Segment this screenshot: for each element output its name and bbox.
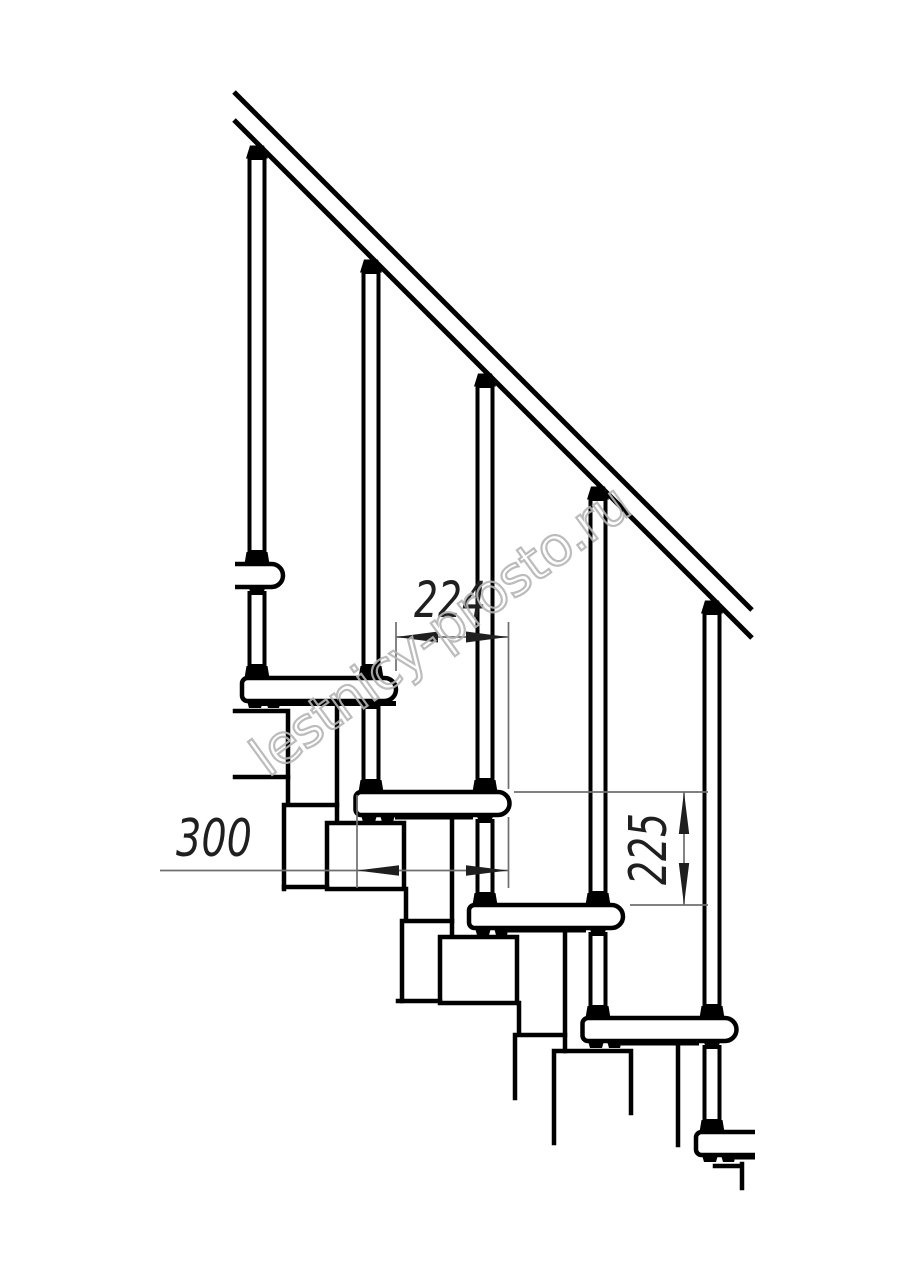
watermark-text: lestnicy-prosto.ru [239, 472, 642, 789]
module-mount-tab [494, 928, 509, 935]
tread [356, 792, 510, 815]
baluster-shaft [705, 613, 720, 1006]
spine-module-box-cut [554, 1051, 631, 1143]
spine-module-step [406, 889, 452, 921]
baluster [245, 146, 270, 679]
spine-module-box [440, 937, 517, 1003]
baluster-collar [700, 1006, 725, 1018]
baluster-collar [359, 780, 384, 792]
drawing-canvas: 224 300 225 lestnicy-prosto.ru [0, 0, 914, 1280]
baluster-collar [586, 893, 611, 905]
module-contact-plate [395, 815, 473, 820]
dimension-depth-label: 300 [176, 809, 252, 869]
tread [469, 905, 623, 928]
module-mount-tab [266, 701, 281, 708]
spine-module-box [327, 823, 404, 889]
module-mount-tab [247, 701, 263, 708]
baluster-shaft [591, 934, 606, 1007]
module-mount-tab [588, 1041, 604, 1048]
module-mount-tab [607, 1041, 622, 1048]
module-contact-plate [621, 1041, 699, 1046]
spine-module-step [519, 1003, 565, 1035]
module-mount-tab [361, 815, 377, 822]
tread [583, 1018, 737, 1041]
spine-module-step [288, 777, 337, 805]
module-mount-tab [721, 1155, 736, 1162]
staircase-technical-drawing: 224 300 225 lestnicy-prosto.ru [0, 0, 914, 1280]
module-contact-plate [508, 928, 586, 933]
baluster-shaft [250, 593, 265, 666]
dimension-rise-label: 225 [619, 813, 679, 885]
tread-cut-top [235, 564, 283, 587]
arrowhead-up-icon [679, 792, 689, 834]
baluster-collar [245, 552, 270, 564]
baluster-collar [245, 666, 270, 678]
baluster-collar [700, 1120, 725, 1132]
baluster [700, 601, 725, 1133]
baluster-shaft [478, 821, 493, 894]
module-mount-tab [380, 815, 395, 822]
dimension-rise: 225 [514, 792, 708, 905]
baluster-collar [586, 1006, 611, 1018]
tread-cut-bottom [696, 1132, 755, 1155]
module-contact-plate [735, 1155, 755, 1160]
baluster-collar [473, 893, 498, 905]
baluster-shaft [364, 272, 379, 666]
module-mount-tab [475, 928, 491, 935]
module-mount-tab [702, 1155, 718, 1162]
arrowhead-down-icon [679, 863, 689, 905]
baluster [586, 487, 611, 1019]
baluster-shaft [705, 1047, 720, 1121]
baluster-collar [473, 780, 498, 792]
baluster-shaft [250, 158, 265, 552]
